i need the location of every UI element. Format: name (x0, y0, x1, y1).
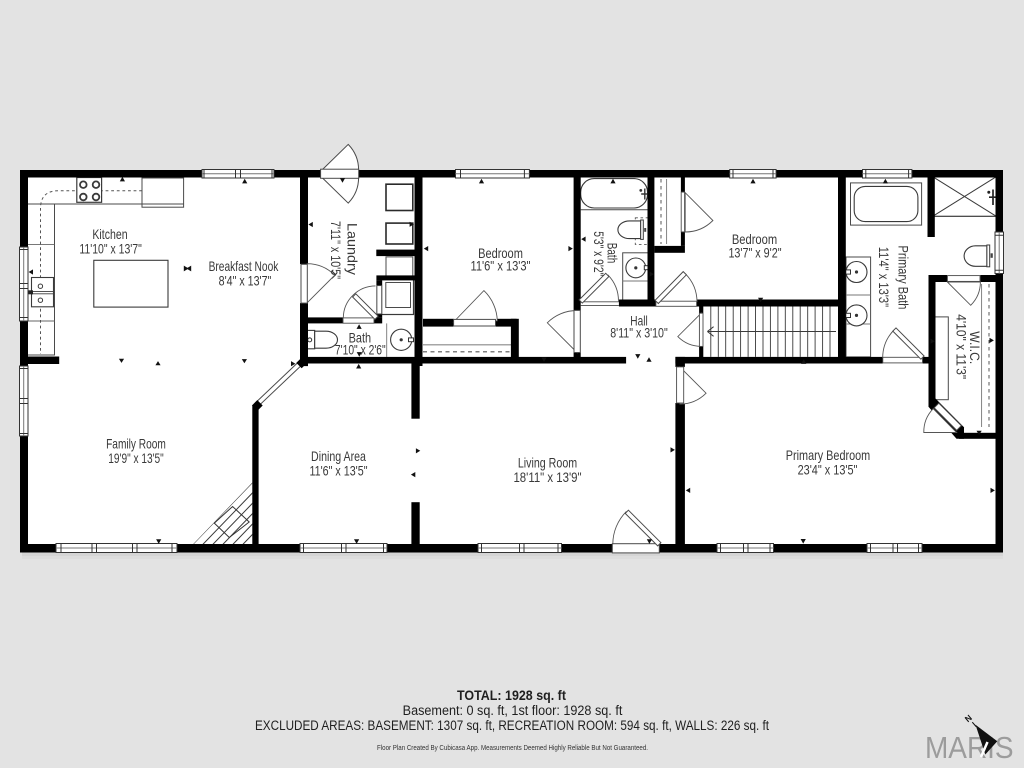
svg-text:TOTAL: 1928 sq. ft: TOTAL: 1928 sq. ft (457, 688, 566, 703)
svg-text:7'11" x 10'5": 7'11" x 10'5" (328, 221, 344, 279)
svg-text:Primary Bath: Primary Bath (896, 246, 912, 310)
svg-text:8'4" x 13'7": 8'4" x 13'7" (219, 273, 272, 289)
svg-text:13'7" x 9'2": 13'7" x 9'2" (728, 244, 781, 260)
svg-text:19'9" x 13'5": 19'9" x 13'5" (108, 450, 164, 466)
svg-text:5'3" x 9'2": 5'3" x 9'2" (591, 231, 607, 276)
svg-text:EXCLUDED AREAS: BASEMENT: 1307: EXCLUDED AREAS: BASEMENT: 1307 sq. ft, R… (255, 718, 769, 733)
svg-text:4'10" x 11'3": 4'10" x 11'3" (953, 314, 969, 379)
svg-text:11'10" x 13'7": 11'10" x 13'7" (79, 241, 142, 257)
svg-text:8'11" x 3'10": 8'11" x 3'10" (610, 325, 668, 341)
svg-text:11'6" x 13'5": 11'6" x 13'5" (310, 463, 368, 479)
svg-text:18'11" x 13'9": 18'11" x 13'9" (513, 469, 581, 485)
svg-text:11'6" x 13'3": 11'6" x 13'3" (471, 258, 531, 274)
svg-text:11'4" x 13'3": 11'4" x 13'3" (876, 247, 892, 307)
svg-text:23'4" x 13'5": 23'4" x 13'5" (798, 461, 858, 477)
svg-text:Floor Plan Created By Cubicasa: Floor Plan Created By Cubicasa App. Meas… (377, 745, 648, 752)
svg-text:Laundry: Laundry (345, 223, 361, 275)
svg-text:Basement: 0 sq. ft, 1st floor:: Basement: 0 sq. ft, 1st floor: 1928 sq. … (403, 703, 623, 718)
svg-text:MARIS: MARIS (925, 730, 1014, 765)
svg-text:7'10" x 2'6": 7'10" x 2'6" (335, 342, 386, 358)
